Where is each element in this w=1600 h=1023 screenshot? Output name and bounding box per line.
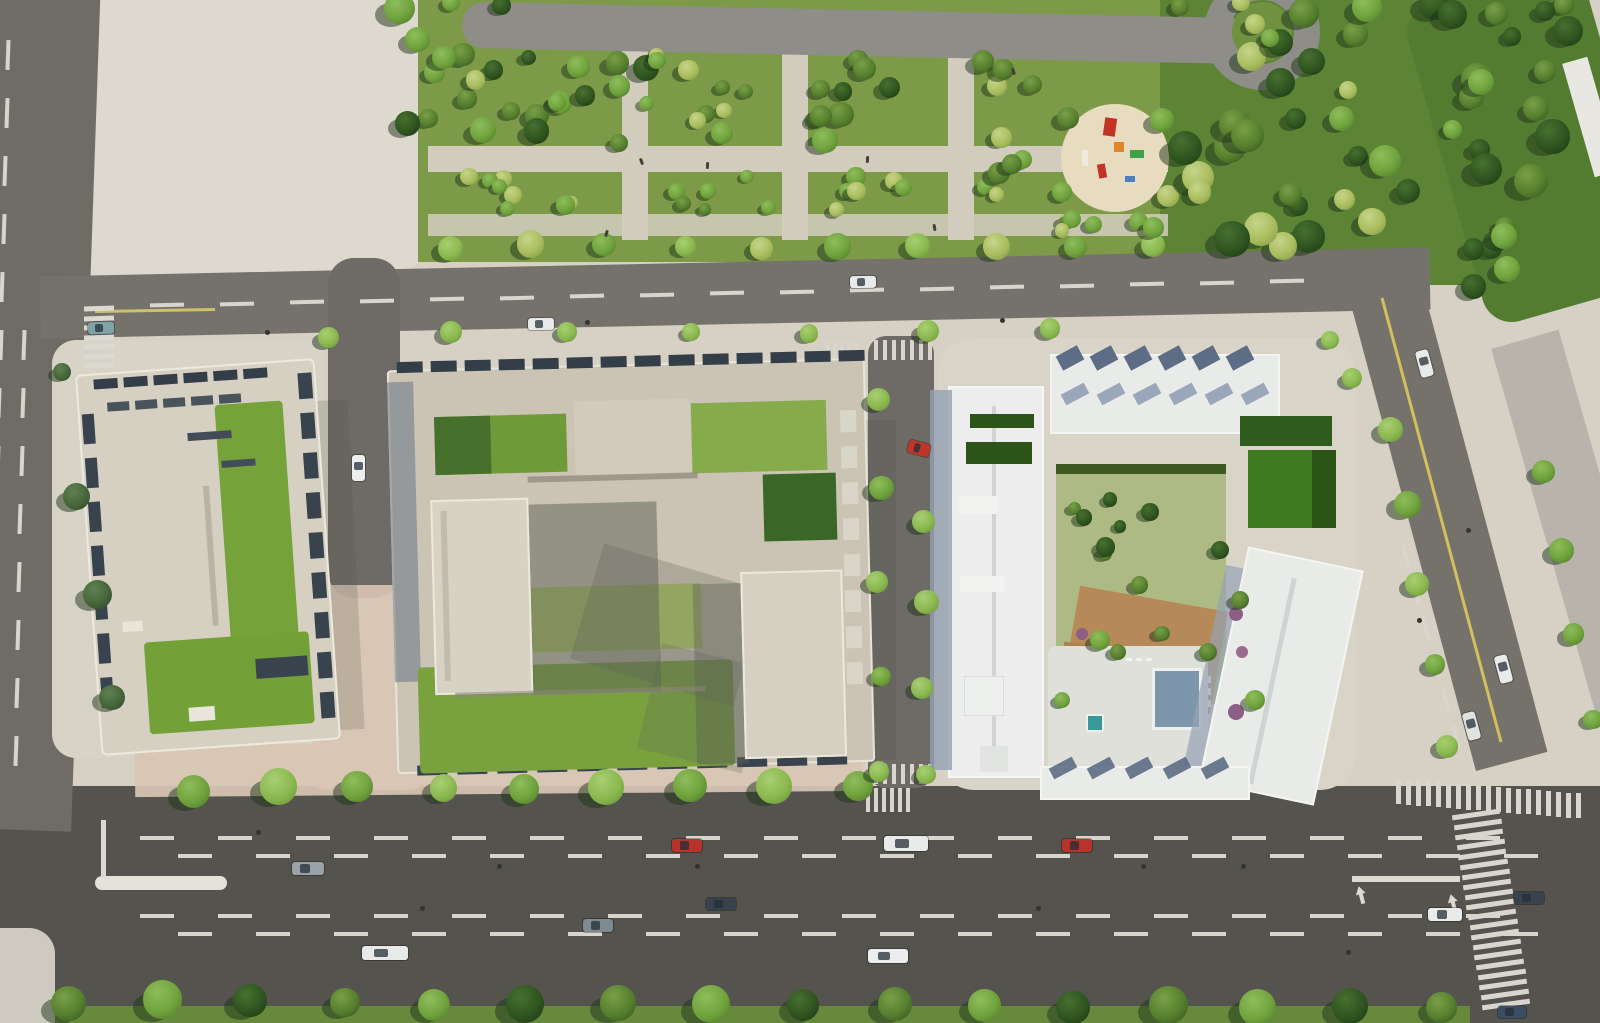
east-balconies-seg	[846, 626, 863, 648]
blvd-dashes-2-seg	[412, 854, 446, 858]
roof-panels-north-seg	[804, 351, 830, 363]
trees-street-east	[914, 590, 939, 615]
trees-bed-2a	[738, 84, 753, 99]
trees-east-lawn	[1266, 68, 1295, 97]
left-road-dashes-a-seg	[1, 214, 6, 244]
blvd-dashes-4-seg	[1426, 932, 1460, 936]
blvd-dashes-4-seg	[1114, 932, 1148, 936]
trees-forest-ne	[1461, 274, 1486, 299]
roof-panels-north-seg	[567, 357, 593, 369]
roof-panels-north-seg	[736, 352, 762, 364]
car-dark-blvd-2-windshield	[1522, 894, 1531, 902]
crosswalk-blvd-mid-seg	[874, 788, 878, 812]
trees-east-lawn	[1279, 183, 1302, 206]
blvd-dashes-3-seg	[452, 914, 486, 918]
blvd-dashes-1-seg	[218, 836, 252, 840]
tree-terrace-1	[1090, 630, 1110, 650]
blvd-dashes-4-seg	[646, 932, 680, 936]
trees-bed-2b	[740, 170, 753, 183]
trees-plaza-edge	[405, 27, 430, 52]
trees-blvd-bottom	[878, 987, 912, 1021]
trees-street-west	[871, 667, 890, 686]
trees-forest-ne	[1503, 27, 1521, 45]
blvd-dashes-3-seg	[530, 914, 564, 918]
trees-east-lawn	[1289, 0, 1319, 28]
van-white-blvd-2	[1428, 908, 1462, 921]
trees-blvd-top	[756, 768, 792, 804]
west-green-roof-2	[966, 442, 1032, 464]
crosswalk-blvd-right-top-seg	[1566, 793, 1571, 818]
trees-forest-ne	[1468, 69, 1494, 95]
aerial-site-render	[0, 0, 1600, 1023]
trees-bed-2a	[648, 52, 665, 69]
trees-forest-ne	[1535, 119, 1569, 153]
east-balconies-seg	[843, 518, 860, 540]
left-road-dashes-b-seg	[13, 736, 18, 766]
lamp	[1000, 318, 1005, 323]
crosswalk-blvd-right-top-seg	[1406, 780, 1411, 805]
trees-upper-verge	[1064, 236, 1087, 259]
trees-bed-3a	[828, 102, 853, 127]
trees-forest-ne	[1463, 238, 1484, 259]
trees-plaza-edge	[457, 88, 477, 108]
center-roof-upper	[574, 398, 692, 477]
blvd-dashes-4-seg	[958, 932, 992, 936]
manhole	[497, 864, 502, 869]
east-balconies-seg	[840, 410, 857, 432]
manhole	[1241, 864, 1246, 869]
manhole	[1036, 906, 1041, 911]
tree-block-nw-1	[53, 363, 71, 381]
roof-panels-east-seg	[303, 452, 319, 479]
crosswalk-left-road-seg	[84, 343, 114, 349]
arrow-head	[1446, 893, 1458, 903]
blvd-dashes-3-seg	[998, 914, 1032, 918]
trees-east-lawn	[1358, 208, 1386, 236]
crosswalk-blvd-right-top-seg	[1506, 788, 1511, 813]
west-wing-shade	[930, 390, 952, 770]
roof-vent-dark	[255, 655, 308, 679]
trees-forest-ne	[1553, 16, 1583, 46]
blvd-dashes-4-seg	[1270, 932, 1304, 936]
crosswalk-blvd-right-top-seg	[1456, 784, 1461, 809]
blvd-dashes-2-seg	[1426, 854, 1460, 858]
upper-road-center-dashes-seg	[1200, 280, 1234, 285]
blvd-stop-line	[1352, 876, 1460, 882]
trees-east-lawn	[1339, 81, 1357, 99]
blvd-dashes-1-seg	[998, 836, 1032, 840]
lamp	[585, 320, 590, 325]
trees-bed-1a	[567, 55, 589, 77]
trees-east-lawn	[1334, 189, 1355, 210]
van-white-blvd-windshield	[878, 952, 890, 961]
play-bench	[1082, 150, 1088, 166]
trees-bed-1b	[556, 195, 576, 215]
crosswalk-blvd-right-top-seg	[1446, 783, 1451, 808]
green-roof-nw-shade	[434, 416, 491, 475]
upper-road-center-dashes-seg	[360, 298, 394, 303]
left-road-dashes-b-seg	[19, 446, 24, 476]
tree-island-1	[1245, 14, 1265, 34]
arrow-head	[1354, 885, 1366, 895]
car-teal-crosswalk	[88, 322, 114, 335]
roof-panels-west-seg	[88, 501, 102, 532]
upper-road-center-dashes-seg	[780, 289, 814, 294]
trees-south-of-upper-road	[557, 322, 577, 342]
blvd-dashes-2-seg	[880, 854, 914, 858]
car-white-upper-road-2-windshield	[857, 278, 865, 286]
blvd-dashes-1-seg	[530, 836, 564, 840]
roof-panels-top2-seg	[219, 393, 242, 404]
trees-bed-3a	[812, 128, 837, 153]
car-dark-blvd-2	[1514, 892, 1544, 904]
bus-white-blvd-2	[884, 836, 928, 851]
blvd-dashes-4-seg	[802, 932, 836, 936]
upper-road-center-dashes-seg	[990, 285, 1024, 290]
trees-east-lawn	[1292, 220, 1325, 253]
blvd-dashes-3-seg	[1232, 914, 1266, 918]
crosswalk-street-bottom-seg	[892, 764, 896, 784]
blvd-dashes-1-seg	[1388, 836, 1422, 840]
upper-road-center-dashes-seg	[1270, 279, 1304, 284]
tree-playground-4	[1052, 182, 1072, 202]
trees-bed-1a	[575, 85, 596, 106]
crosswalk-blvd-mid-seg	[882, 788, 886, 812]
east-balconies-seg	[841, 446, 858, 468]
upper-road-center-dashes-seg	[150, 303, 184, 308]
crosswalk-blvd-mid-seg	[906, 788, 910, 812]
crosswalk-blvd-mid-seg	[890, 788, 894, 812]
manhole	[1417, 618, 1422, 623]
blvd-dashes-1-seg	[452, 836, 486, 840]
tree-ne-sidewalk-1	[1342, 368, 1362, 388]
trees-east-lawn	[1369, 145, 1401, 177]
upper-road-center-dashes-seg	[850, 288, 884, 293]
blvd-dashes-2-seg	[1192, 854, 1226, 858]
trees-upper-verge	[517, 230, 544, 257]
roof-panels-top-seg	[123, 376, 148, 388]
crosswalk-blvd-right-top-seg	[1466, 785, 1471, 810]
blvd-dashes-4-seg	[256, 932, 290, 936]
west-stair	[980, 746, 1008, 772]
shrub-purple-3	[1076, 628, 1088, 640]
east-balconies-seg	[842, 482, 859, 504]
blvd-dashes-3-seg	[1154, 914, 1188, 918]
trees-south-of-upper-road	[682, 323, 699, 340]
trees-bed-1a	[606, 51, 629, 74]
van-white-blvd	[868, 949, 908, 963]
trees-courtyard	[1131, 576, 1149, 594]
blvd-dashes-3-seg	[296, 914, 330, 918]
trees-blvd-bottom	[600, 985, 636, 1021]
trees-forest-ne	[1470, 153, 1502, 185]
crosswalk-blvd-right-top-seg	[1556, 792, 1561, 817]
blvd-dashes-3-seg	[374, 914, 408, 918]
trees-bed-1a	[610, 134, 628, 152]
left-road-dashes-a-seg	[4, 98, 9, 128]
trees-east-lawn	[1168, 131, 1202, 165]
roof-panels-west-seg	[91, 545, 105, 576]
car-red-blvd-1	[672, 839, 702, 852]
blvd-dashes-3-seg	[1076, 914, 1110, 918]
trees-blvd-bottom	[1332, 988, 1368, 1023]
blvd-dashes-2-seg	[958, 854, 992, 858]
trees-street-east	[916, 765, 935, 784]
trees-street-west	[869, 476, 894, 501]
east-balconies-seg	[844, 554, 861, 576]
crosswalk-street-top-seg	[883, 340, 887, 360]
trees-blvd-bottom	[1426, 992, 1457, 1023]
trees-plaza-edge	[432, 46, 455, 69]
roof-panels-top2-seg	[191, 395, 214, 406]
crosswalk-street-top-seg	[901, 340, 905, 360]
trees-bed-1a	[521, 50, 536, 65]
blvd-dashes-2-seg	[490, 854, 524, 858]
green-roof-east-dark	[763, 473, 838, 542]
ne-green-roof-shade	[1312, 450, 1336, 528]
trees-bed-3b	[847, 182, 866, 201]
trees-blvd-top	[430, 774, 458, 802]
manhole	[1141, 864, 1146, 869]
pool-loungers-1-seg	[1146, 658, 1152, 661]
trees-bed-1a	[524, 118, 549, 143]
roof-panels-west-seg	[82, 414, 96, 445]
trees-blvd-bottom	[968, 989, 1000, 1021]
trees-blvd-bottom	[1239, 989, 1276, 1023]
trees-street-east	[911, 677, 933, 699]
tree-ne-sidewalk-2	[1321, 331, 1339, 349]
crosswalk-blvd-right-top-seg	[1576, 793, 1581, 818]
tree-playground-2	[1150, 108, 1174, 132]
roof-panels-top-seg	[183, 372, 208, 384]
blvd-dashes-1-seg	[1154, 836, 1188, 840]
blvd-median-bar	[95, 876, 227, 890]
car-gray-blvd-2	[583, 919, 613, 932]
roof-panels-top2-seg	[107, 401, 130, 412]
trees-bed-5	[1055, 223, 1069, 237]
car-dark-blvd-1-windshield	[714, 900, 723, 908]
blvd-dashes-1-seg	[374, 836, 408, 840]
trees-east-lawn	[1329, 106, 1354, 131]
trees-bed-2a	[678, 60, 699, 81]
blvd-dashes-1-seg	[296, 836, 330, 840]
west-roof-unit-3	[964, 676, 1004, 716]
pool-loungers-1-seg	[1136, 658, 1142, 661]
blvd-dashes-2-seg	[802, 854, 836, 858]
crosswalk-blvd-right-top-seg	[1416, 781, 1421, 806]
trees-upper-verge	[675, 236, 696, 257]
trees-forest-ne	[1438, 0, 1467, 29]
west-roof-unit-2	[960, 576, 1004, 592]
trees-courtyard	[1154, 626, 1170, 642]
trees-forest-ne	[1443, 120, 1462, 139]
tower-east-wing	[740, 569, 847, 759]
blvd-dashes-2-seg	[256, 854, 290, 858]
crosswalk-left-road-seg	[84, 334, 114, 340]
car-blue-blvd-windshield	[1505, 1008, 1513, 1016]
roof-panels-east-seg	[320, 692, 336, 719]
roof-panels-west-seg	[85, 458, 99, 489]
manhole	[420, 906, 425, 911]
trees-south-of-upper-road	[917, 320, 939, 342]
trees-east-lawn	[1343, 21, 1368, 46]
trees-courtyard	[1110, 644, 1126, 660]
trees-plaza-edge	[395, 111, 420, 136]
upper-road-center-dashes-seg	[1130, 282, 1164, 287]
green-roof-ne	[691, 400, 828, 474]
trees-blvd-bottom	[330, 988, 360, 1018]
spa-pool	[1086, 714, 1104, 732]
blvd-dashes-2-seg	[568, 854, 602, 858]
trees-bed-4	[1023, 75, 1042, 94]
blvd-dashes-2-seg	[1270, 854, 1304, 858]
roof-unit-2	[122, 621, 143, 632]
blvd-dashes-1-seg	[764, 836, 798, 840]
trees-bed-2a	[711, 122, 733, 144]
trees-right-road-west	[1436, 735, 1459, 758]
trees-bed-3a	[810, 105, 832, 127]
car-red-blvd-1-windshield	[680, 841, 689, 849]
bus-white-blvd-2-windshield	[895, 839, 908, 849]
blvd-dashes-1-seg	[1232, 836, 1266, 840]
roof-panels-north-seg	[397, 361, 423, 373]
trees-right-road-east	[1583, 710, 1600, 729]
tree-terrace-4	[1054, 692, 1070, 708]
shrub-purple-2	[1236, 646, 1248, 658]
upper-road-center-dashes-seg	[500, 295, 534, 300]
blvd-dashes-4-seg	[334, 932, 368, 936]
middle-residential-block	[387, 350, 876, 782]
trees-east-lawn	[1298, 48, 1325, 75]
crosswalk-street-top-seg	[892, 340, 896, 360]
roof-panels-west-seg	[97, 633, 111, 664]
trees-east-lawn	[1188, 180, 1212, 204]
roof-panels-top-seg	[93, 378, 118, 390]
trees-forest-ne	[1514, 164, 1548, 198]
trees-upper-verge	[983, 233, 1010, 260]
roof-panels-east-seg	[300, 412, 316, 439]
blvd-dashes-1-seg	[842, 836, 876, 840]
crosswalk-blvd-right-top-seg	[1516, 789, 1521, 814]
tree-terrace-2	[1231, 591, 1249, 609]
crosswalk-blvd-right-top-seg	[1436, 782, 1441, 807]
blvd-dashes-2-seg	[1348, 854, 1382, 858]
east-balconies-seg	[847, 662, 864, 684]
trees-bed-2a	[715, 80, 730, 95]
play-equipment-green-slide	[1130, 150, 1144, 158]
trees-forest-ne	[1494, 256, 1520, 282]
trees-right-road-west	[1394, 491, 1421, 518]
blvd-dashes-3-seg	[140, 914, 174, 918]
trees-courtyard	[1096, 537, 1115, 556]
trees-bed-2a	[716, 103, 731, 118]
trees-blvd-bottom	[506, 985, 544, 1023]
car-teal-crosswalk-windshield	[95, 324, 103, 332]
trees-blvd-bottom	[1056, 991, 1090, 1023]
trees-bed-5	[1085, 216, 1102, 233]
trees-blvd-top	[673, 769, 706, 802]
pedestrian	[866, 156, 869, 163]
trees-bed-1a	[502, 102, 520, 120]
west-roof-unit-1	[958, 496, 998, 514]
crosswalk-blvd-right-top-seg	[1476, 785, 1481, 810]
trees-courtyard	[1076, 509, 1093, 526]
blvd-dashes-2-seg	[724, 854, 758, 858]
trees-bed-3a	[811, 80, 829, 98]
car-white-upper-road-1-windshield	[535, 320, 543, 328]
trees-bed-2a	[689, 112, 706, 129]
upper-road-center-dashes-seg	[430, 297, 464, 302]
car-gray-blvd-1	[292, 862, 324, 875]
trees-blvd-bottom	[233, 984, 267, 1018]
trees-blvd-bottom	[1149, 986, 1188, 1023]
trees-bed-1b	[460, 168, 478, 186]
crosswalk-blvd-right-top-seg	[1426, 781, 1431, 806]
trees-blvd-bottom	[692, 985, 730, 1023]
car-dark-blvd-1	[706, 898, 736, 910]
roof-panels-north-seg	[838, 350, 864, 362]
west-green-roof-1	[970, 414, 1034, 428]
roof-panels-north-seg	[431, 360, 457, 372]
trees-courtyard	[1141, 503, 1158, 520]
roof-panels-north-seg	[702, 353, 728, 365]
trees-bed-1b	[492, 179, 507, 194]
roof-panels-top-seg	[153, 374, 178, 386]
tree-terrace-3	[1245, 690, 1265, 710]
bus-white-blvd-1-windshield	[374, 949, 388, 958]
roof-panels-north-seg	[465, 360, 491, 372]
roof-panels-east-seg	[317, 652, 333, 679]
tree-playground-1	[1057, 107, 1079, 129]
crosswalk-blvd-right-top-seg	[1536, 790, 1541, 815]
palms-left-road	[99, 685, 125, 711]
trees-south-of-upper-road	[318, 327, 339, 348]
blvd-dashes-2-seg	[334, 854, 368, 858]
trees-forest-ne	[1485, 2, 1508, 25]
blvd-dashes-3-seg	[764, 914, 798, 918]
blvd-dashes-1-seg	[140, 836, 174, 840]
roof-panels-north-seg	[601, 356, 627, 368]
crosswalk-left-road-seg	[84, 362, 114, 368]
east-balconies-seg	[845, 590, 862, 612]
trees-south-of-upper-road	[800, 324, 819, 343]
blvd-dashes-3-seg	[920, 914, 954, 918]
courtyard-hedge	[1056, 464, 1226, 474]
blvd-dashes-3-seg	[1388, 914, 1422, 918]
roof-panels-east-seg	[306, 492, 322, 519]
trees-east-lawn	[1214, 221, 1249, 256]
blvd-dashes-3-seg	[842, 914, 876, 918]
left-road-dashes-b-seg	[20, 388, 25, 418]
crosswalk-blvd-right-top-seg	[1486, 786, 1491, 811]
van-white-blvd-2-windshield	[1437, 910, 1447, 918]
trees-blvd-top	[341, 771, 373, 803]
blvd-dashes-4-seg	[490, 932, 524, 936]
upper-road-center-dashes-seg	[640, 292, 674, 297]
trees-bed-5	[1143, 217, 1164, 238]
car-white-culdesac-windshield	[354, 462, 362, 470]
roof-panels-north-seg	[668, 354, 694, 366]
roof-panels-east-seg	[311, 572, 327, 599]
blvd-dashes-4-seg	[178, 932, 212, 936]
roof-panels-north-seg	[533, 358, 559, 370]
car-white-upper-road-2	[850, 276, 876, 288]
crosswalk-blvd-right-top-seg	[1546, 791, 1551, 816]
crosswalk-street-top-seg	[874, 340, 878, 360]
upper-road-center-dashes-seg	[570, 294, 604, 299]
manhole	[256, 830, 261, 835]
roof-panels-east-seg	[309, 532, 325, 559]
